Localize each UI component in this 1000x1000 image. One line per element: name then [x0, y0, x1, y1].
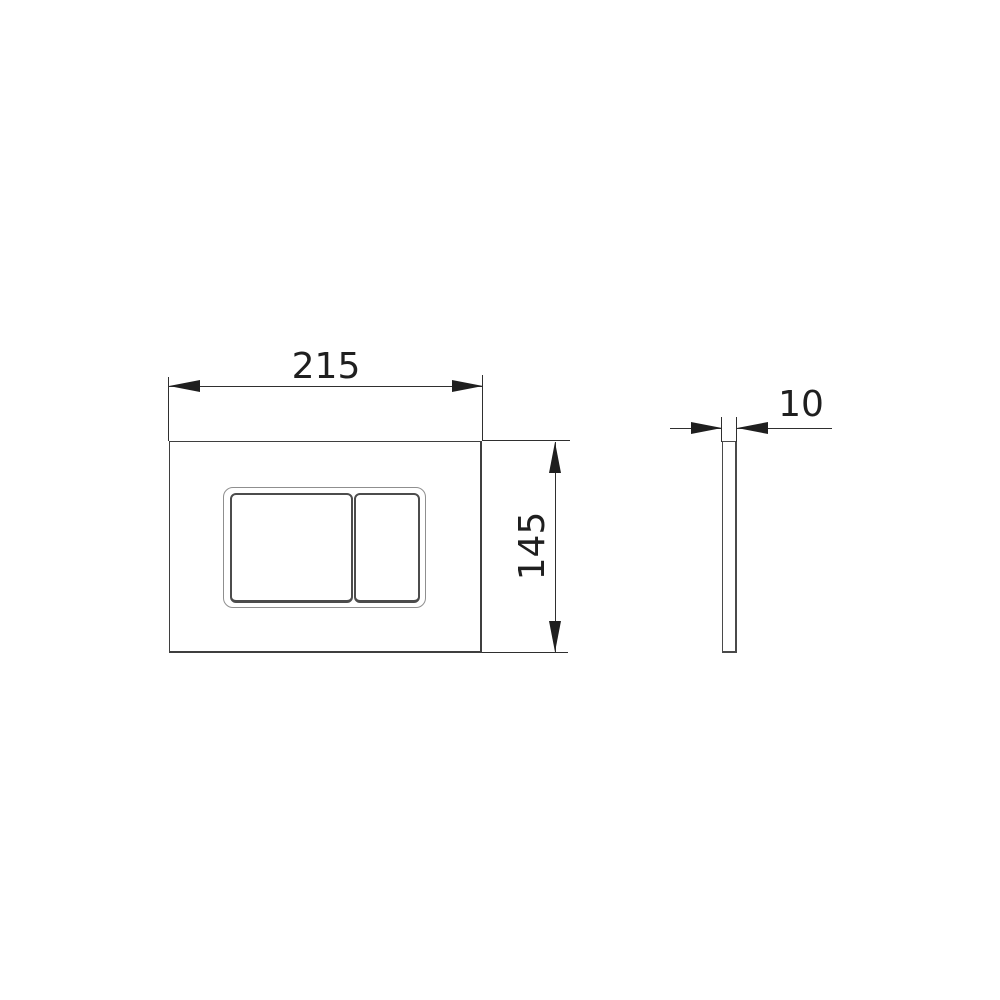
arrowhead-down-icon: [549, 621, 561, 652]
arrowhead-right-icon: [452, 380, 483, 392]
height-extension-line-bottom: [482, 652, 568, 653]
arrowhead-pointing-left-icon: [737, 422, 768, 434]
height-extension-line-top: [482, 440, 570, 441]
small-flush-button: [354, 493, 420, 603]
technical-drawing-canvas: 215 145 10: [0, 0, 1000, 1000]
arrowhead-up-icon: [549, 442, 561, 473]
large-flush-button: [230, 493, 353, 603]
width-dimension-label: 215: [292, 349, 361, 385]
thickness-dimension-label: 10: [778, 387, 824, 423]
height-dimension-label: 145: [515, 512, 551, 581]
arrowhead-left-icon: [169, 380, 200, 392]
arrowhead-pointing-right-icon: [691, 422, 722, 434]
side-view-plate-profile: [722, 441, 737, 653]
